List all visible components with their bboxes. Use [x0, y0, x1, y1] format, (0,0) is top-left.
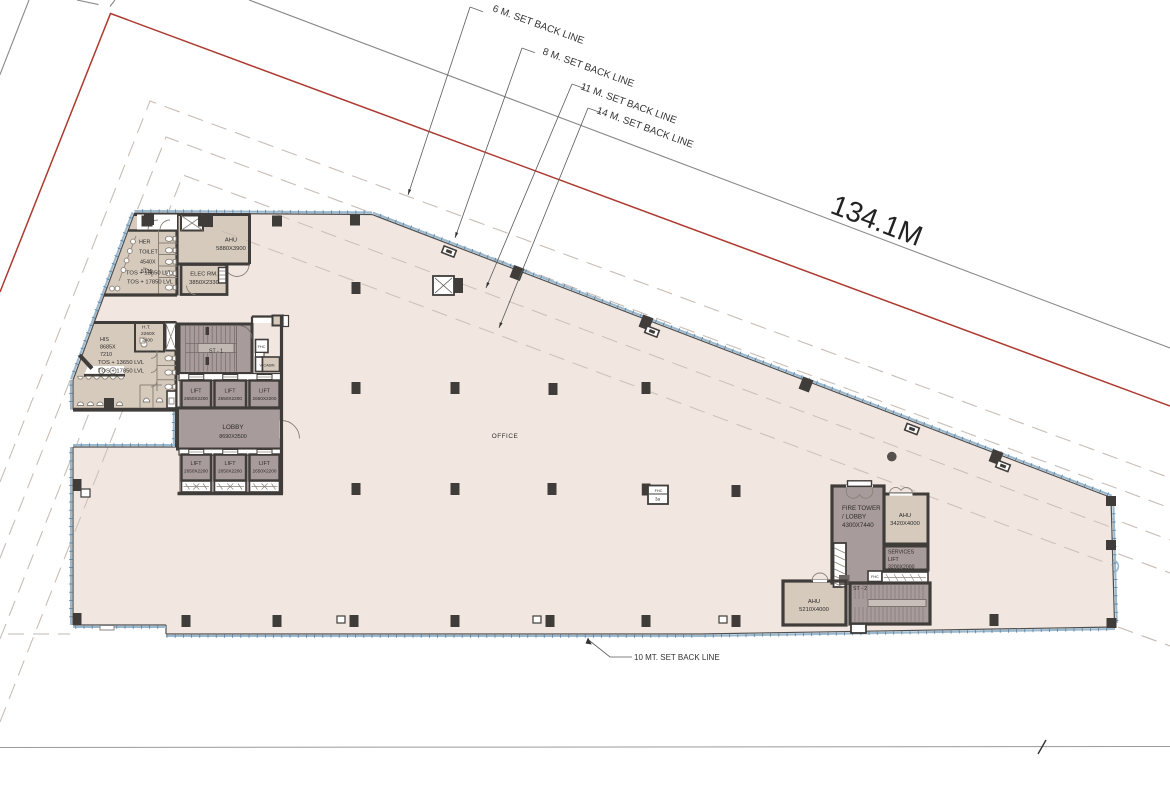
svg-text:FHC: FHC	[258, 345, 266, 349]
svg-text:/ LOBBY: / LOBBY	[842, 514, 866, 521]
svg-text:ELEC RM.: ELEC RM.	[190, 272, 218, 278]
svg-text:2650X2200: 2650X2200	[184, 396, 208, 401]
svg-text:AHU: AHU	[808, 599, 820, 605]
svg-text:AHU: AHU	[899, 513, 911, 519]
svg-text:HIS: HIS	[100, 337, 109, 343]
svg-text:5210X4000: 5210X4000	[799, 607, 829, 613]
svg-text:2650X2200: 2650X2200	[253, 469, 277, 474]
svg-text:H.T.: H.T.	[142, 325, 151, 331]
svg-text:LIFT: LIFT	[888, 557, 899, 563]
svg-text:FIRE TOWER: FIRE TOWER	[842, 505, 881, 512]
svg-text:4540X: 4540X	[140, 260, 156, 266]
svg-text:2260X: 2260X	[141, 331, 156, 337]
svg-text:V. CABIN: V. CABIN	[259, 364, 274, 368]
svg-text:2400: 2400	[142, 338, 153, 344]
svg-text:HER: HER	[139, 240, 150, 246]
svg-text:3420X4000: 3420X4000	[890, 521, 920, 527]
svg-text:8685X: 8685X	[100, 345, 116, 351]
svg-text:LIFT: LIFT	[259, 461, 271, 467]
svg-text:8690X3500: 8690X3500	[219, 434, 247, 440]
svg-text:2650X2200: 2650X2200	[218, 396, 242, 401]
svg-text:10 MT. SET BACK LINE: 10 MT. SET BACK LINE	[634, 653, 720, 662]
svg-text:FHC: FHC	[871, 575, 879, 579]
svg-text:TOS + 13650 LVL: TOS + 13650 LVL	[126, 271, 173, 277]
svg-text:7210: 7210	[100, 352, 112, 358]
svg-text:OFFICE: OFFICE	[492, 433, 518, 440]
svg-text:TOS + 17850 LVL: TOS + 17850 LVL	[98, 369, 145, 375]
svg-text:LOBBY: LOBBY	[222, 424, 244, 431]
svg-text:ST - 1: ST - 1	[209, 349, 223, 355]
svg-text:2650X2200: 2650X2200	[184, 469, 208, 474]
svg-text:5880X3900: 5880X3900	[216, 246, 246, 252]
svg-text:ST - 2: ST - 2	[853, 586, 867, 592]
svg-text:2650X2200: 2650X2200	[253, 396, 277, 401]
svg-text:TOS + 17850 LVL: TOS + 17850 LVL	[127, 280, 174, 286]
svg-text:FHC: FHC	[655, 489, 663, 493]
svg-text:LIFT: LIFT	[190, 389, 202, 395]
svg-text:3200X2000: 3200X2000	[888, 565, 915, 571]
svg-text:2650X2200: 2650X2200	[218, 469, 242, 474]
svg-text:LIFT: LIFT	[259, 389, 271, 395]
svg-text:AHU: AHU	[225, 238, 237, 244]
svg-text:3850X2330: 3850X2330	[189, 280, 219, 286]
svg-text:LIFT: LIFT	[224, 389, 236, 395]
svg-text:TOS + 13650 LVL: TOS + 13650 LVL	[98, 360, 145, 366]
svg-text:4300X7440: 4300X7440	[842, 522, 874, 529]
svg-text:LIFT: LIFT	[190, 461, 202, 467]
svg-text:LIFT: LIFT	[224, 461, 236, 467]
svg-text:3a: 3a	[655, 497, 661, 502]
svg-text:TOILET: TOILET	[139, 250, 158, 256]
svg-text:SERVICES: SERVICES	[888, 550, 915, 556]
